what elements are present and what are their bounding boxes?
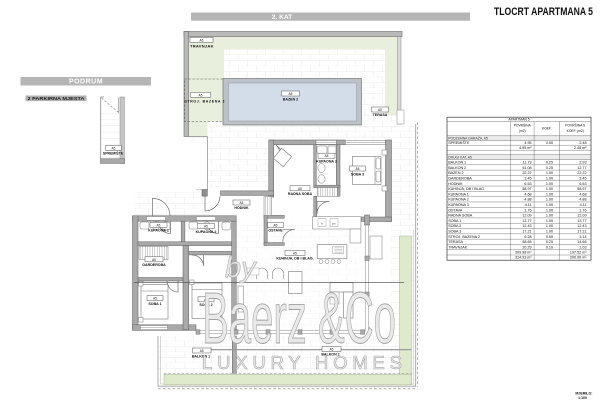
svg-text:A5: A5 (325, 154, 329, 158)
svg-text:51.08: 51.08 (522, 166, 531, 170)
svg-text:GARDEROBA: GARDEROBA (142, 263, 166, 267)
svg-text:A5: A5 (199, 93, 203, 97)
svg-text:11.73: 11.73 (523, 161, 532, 165)
svg-text:22.22: 22.22 (577, 171, 586, 175)
svg-text:KUPAONA 1: KUPAONA 1 (448, 192, 469, 196)
svg-text:4.95 m²: 4.95 m² (519, 146, 532, 150)
svg-text:SPREMIŠTE: SPREMIŠTE (103, 151, 124, 156)
svg-text:1.00: 1.00 (546, 187, 553, 191)
svg-text:200.00 m²: 200.00 m² (570, 256, 587, 260)
svg-text:4.11: 4.11 (525, 203, 532, 207)
svg-text:12.43: 12.43 (577, 224, 586, 228)
svg-text:PODRUM: PODRUM (69, 79, 103, 86)
svg-text:22.22: 22.22 (522, 171, 531, 175)
svg-text:2. KAT: 2. KAT (272, 14, 292, 21)
svg-text:1.00: 1.00 (546, 171, 553, 175)
svg-text:Baerz &Co: Baerz &Co (202, 279, 396, 359)
svg-text:RADNA SOBA: RADNA SOBA (288, 192, 313, 196)
svg-text:17.21: 17.21 (522, 230, 531, 234)
svg-text:STROJ. BAZENA 2: STROJ. BAZENA 2 (185, 99, 225, 103)
svg-text:KOEF.: KOEF. (542, 127, 552, 131)
svg-text:HODNIK: HODNIK (448, 182, 463, 186)
svg-text:TRAVNJAK: TRAVNJAK (190, 43, 214, 48)
svg-text:58.97: 58.97 (577, 187, 586, 191)
svg-text:3.14: 3.14 (579, 235, 586, 239)
svg-text:A5: A5 (274, 224, 278, 228)
svg-text:1.00: 1.00 (546, 224, 553, 228)
svg-text:A5: A5 (200, 38, 204, 42)
svg-text:BALKON 1: BALKON 1 (448, 161, 466, 165)
svg-text:A5: A5 (157, 223, 161, 227)
svg-text:4.88: 4.88 (524, 198, 531, 202)
svg-text:1.76: 1.76 (524, 208, 531, 212)
svg-text:APARTMAN 5: APARTMAN 5 (508, 117, 529, 121)
svg-text:KUPAONA 2: KUPAONA 2 (196, 230, 217, 234)
svg-text:6.28: 6.28 (524, 235, 531, 239)
svg-text:SOBA 1: SOBA 1 (448, 219, 461, 223)
svg-text:OSTAVA: OSTAVA (448, 208, 463, 212)
svg-text:2 PARKIRNA MJESTA: 2 PARKIRNA MJESTA (28, 96, 85, 101)
svg-text:14.66: 14.66 (577, 240, 586, 244)
svg-text:A5: A5 (289, 92, 293, 96)
svg-text:1.00: 1.00 (546, 192, 553, 196)
svg-text:12.09: 12.09 (522, 214, 531, 218)
svg-text:4.88: 4.88 (579, 198, 586, 202)
svg-text:A5: A5 (293, 251, 297, 255)
svg-text:0.25: 0.25 (546, 161, 553, 165)
svg-text:OSTAVE: OSTAVE (268, 229, 283, 233)
svg-text:SOBA 3: SOBA 3 (351, 172, 364, 176)
svg-text:A5: A5 (204, 225, 208, 229)
svg-text:4.68: 4.68 (579, 192, 586, 196)
svg-text:TERASA: TERASA (448, 240, 463, 244)
svg-text:1.00: 1.00 (546, 198, 553, 202)
svg-text:KUHINJA, DB I BLAG.: KUHINJA, DB I BLAG. (276, 257, 313, 261)
svg-text:SOBA 1: SOBA 1 (148, 302, 161, 306)
svg-text:13.77: 13.77 (522, 219, 531, 223)
svg-text:A5: A5 (240, 201, 244, 205)
svg-text:TLOCRT APARTMANA 5: TLOCRT APARTMANA 5 (494, 6, 593, 18)
svg-text:A5: A5 (356, 167, 360, 171)
svg-text:1:100: 1:100 (578, 396, 587, 400)
svg-text:12.77: 12.77 (577, 166, 586, 170)
svg-text:12.43: 12.43 (522, 224, 531, 228)
svg-text:58.65: 58.65 (522, 240, 531, 244)
svg-text:314.93 m²: 314.93 m² (515, 256, 532, 260)
svg-text:KOEF. (m2): KOEF. (m2) (567, 129, 584, 133)
svg-text:0.10: 0.10 (546, 245, 553, 249)
svg-text:2.03: 2.03 (579, 245, 586, 249)
svg-text:MJERILO:: MJERILO: (575, 392, 592, 396)
svg-text:(m2): (m2) (519, 129, 526, 133)
svg-text:2.48: 2.48 (579, 141, 586, 145)
svg-text:0.50: 0.50 (546, 235, 553, 239)
svg-text:SOBA 2: SOBA 2 (448, 224, 461, 228)
svg-text:1.00: 1.00 (546, 230, 553, 234)
svg-text:3.45: 3.45 (579, 176, 586, 180)
svg-text:PODZEMNA GARAŽA, A5: PODZEMNA GARAŽA, A5 (448, 135, 488, 140)
svg-text:1.00: 1.00 (546, 203, 553, 207)
svg-text:1.00: 1.00 (546, 176, 553, 180)
svg-text:6.53: 6.53 (524, 182, 531, 186)
svg-text:KUPAONA 1: KUPAONA 1 (148, 229, 169, 233)
svg-text:KUPAONA 2: KUPAONA 2 (448, 198, 469, 202)
svg-text:197.52 m²: 197.52 m² (570, 251, 587, 255)
svg-text:A5: A5 (378, 108, 382, 112)
svg-text:A5: A5 (152, 258, 156, 262)
svg-text:KUHINJA, DB I BLAG.: KUHINJA, DB I BLAG. (448, 187, 485, 191)
svg-text:POVRŠINA: POVRŠINA (514, 123, 532, 128)
svg-text:0.50: 0.50 (546, 141, 553, 145)
svg-text:0.25: 0.25 (546, 166, 553, 170)
svg-text:STROJ. BAZENA 2: STROJ. BAZENA 2 (448, 235, 480, 239)
svg-text:1.00: 1.00 (546, 208, 553, 212)
svg-text:POVRŠINA S: POVRŠINA S (565, 123, 586, 128)
svg-text:ps: ps (332, 222, 336, 226)
svg-text:20.29: 20.29 (522, 245, 531, 249)
svg-text:BAZEN 2: BAZEN 2 (283, 97, 298, 101)
svg-text:SPREMIŠTE: SPREMIŠTE (448, 140, 470, 145)
svg-text:RADNA SOBA: RADNA SOBA (448, 214, 473, 218)
svg-text:13.77: 13.77 (577, 219, 586, 223)
svg-text:12.09: 12.09 (577, 214, 586, 218)
svg-text:BAZEN 2: BAZEN 2 (448, 171, 463, 175)
svg-text:4.68: 4.68 (524, 192, 531, 196)
svg-text:1.76: 1.76 (579, 208, 586, 212)
svg-text:6.53: 6.53 (579, 182, 586, 186)
svg-text:TERASA: TERASA (373, 113, 388, 117)
svg-text:17.21: 17.21 (577, 230, 586, 234)
svg-text:2.48 m²: 2.48 m² (574, 146, 587, 150)
svg-text:309.98 m²: 309.98 m² (515, 251, 532, 255)
svg-text:1.00: 1.00 (546, 219, 553, 223)
svg-text:4.95: 4.95 (524, 141, 531, 145)
svg-text:TRAVNJAK: TRAVNJAK (448, 245, 468, 249)
svg-text:0.25: 0.25 (546, 240, 553, 244)
svg-text:KUPAONA 3: KUPAONA 3 (448, 203, 469, 207)
svg-text:2.93: 2.93 (579, 161, 586, 165)
svg-text:A5: A5 (112, 146, 116, 150)
svg-text:1.00: 1.00 (546, 182, 553, 186)
svg-text:HODNIK: HODNIK (234, 206, 249, 210)
svg-text:58.97: 58.97 (522, 187, 531, 191)
svg-text:SOBA 3: SOBA 3 (448, 230, 461, 234)
svg-text:DRUGI KAT, A5: DRUGI KAT, A5 (448, 155, 472, 159)
svg-text:A5: A5 (153, 297, 157, 301)
svg-text:BALKON 2: BALKON 2 (448, 166, 466, 170)
svg-text:A5: A5 (298, 187, 302, 191)
svg-text:3.45: 3.45 (524, 176, 531, 180)
svg-text:4.11: 4.11 (580, 203, 587, 207)
svg-text:1.00: 1.00 (546, 214, 553, 218)
svg-text:GARDEROBA: GARDEROBA (448, 176, 472, 180)
svg-text:KUPAONA 3: KUPAONA 3 (316, 159, 337, 163)
